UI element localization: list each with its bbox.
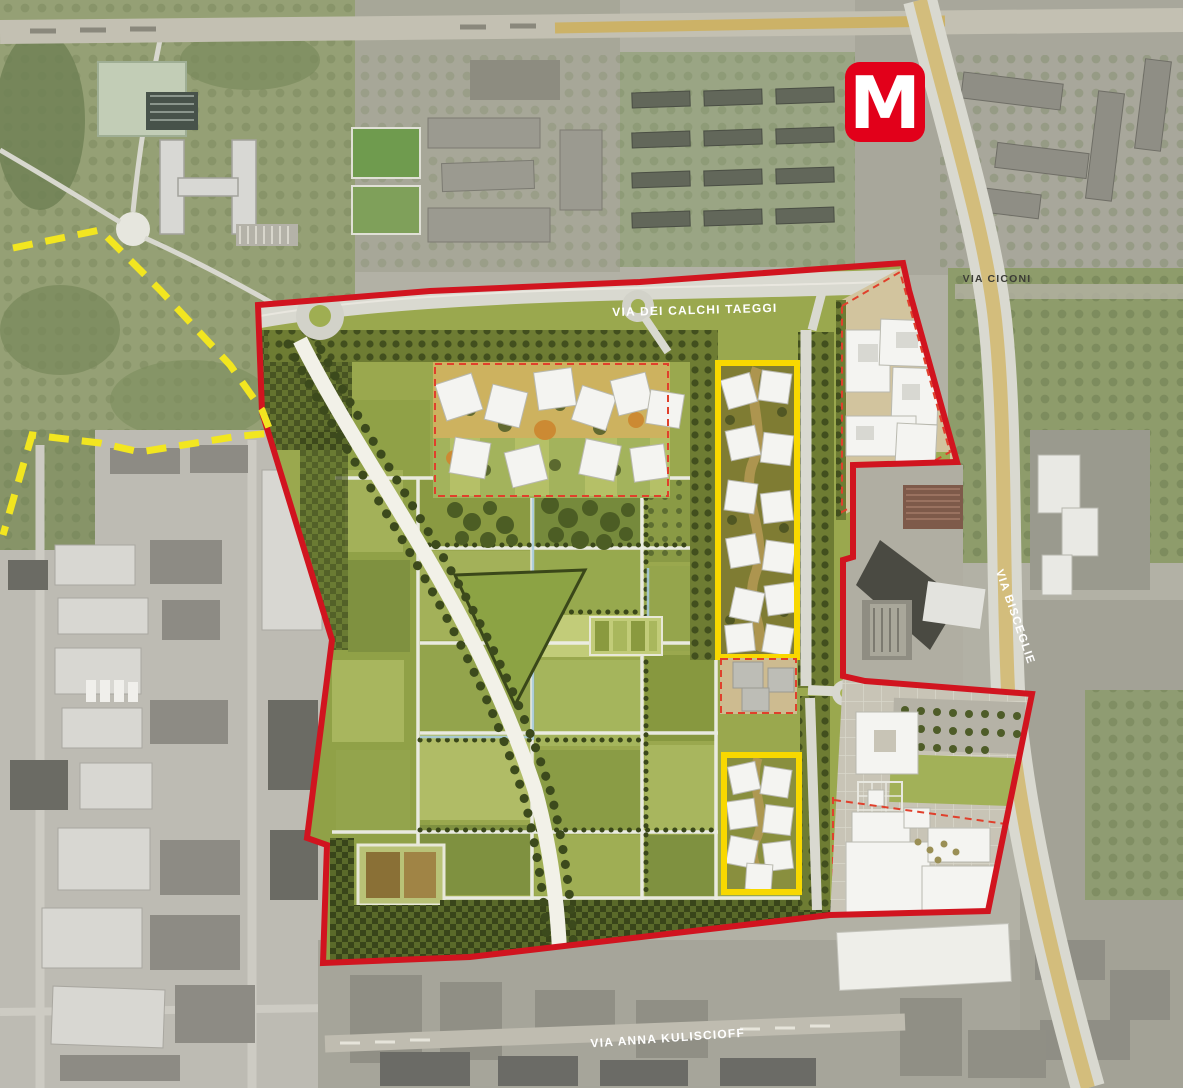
masterplan-map: M VIA DEI CALCHI TAEGGI VIA CICONI VIA B…	[0, 0, 1183, 1088]
housing-zone-north	[433, 362, 684, 498]
housing-zone-yellow-a	[718, 363, 798, 668]
existing-buildings-zone	[720, 658, 797, 714]
metro-logo: M	[845, 61, 925, 145]
metro-letter: M	[849, 61, 921, 145]
label-via-ciconi: VIA CICONI	[963, 273, 1032, 285]
